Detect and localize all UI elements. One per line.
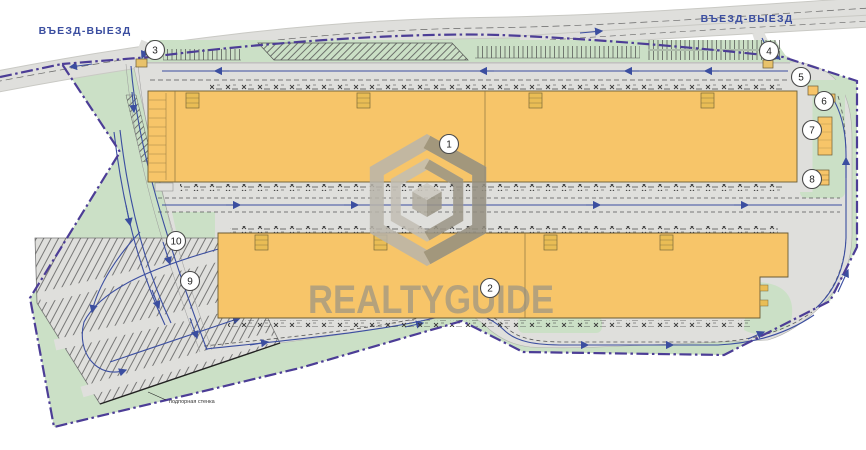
structure-7 bbox=[818, 117, 832, 155]
plan-marker-1: 1 bbox=[440, 135, 459, 154]
retaining-wall-label: подпорная стенка bbox=[169, 399, 216, 405]
plan-marker-3: 3 bbox=[146, 41, 165, 60]
svg-text:4: 4 bbox=[766, 47, 772, 58]
plan-marker-9: 9 bbox=[181, 272, 200, 291]
plan-marker-10: 10 bbox=[167, 232, 186, 251]
entrance-label-right: ВЪЕЗД-ВЫЕЗД bbox=[701, 13, 794, 25]
dock-doors-top bbox=[230, 226, 778, 233]
plan-marker-6: 6 bbox=[815, 92, 834, 111]
svg-text:1: 1 bbox=[446, 140, 452, 151]
svg-text:7: 7 bbox=[809, 126, 815, 137]
plan-marker-5: 5 bbox=[792, 68, 811, 87]
structure-5 bbox=[808, 86, 818, 95]
dock-doors-top bbox=[210, 84, 785, 91]
svg-text:6: 6 bbox=[821, 97, 827, 108]
watermark-text: REALTYGUIDE bbox=[308, 278, 554, 322]
plan-marker-4: 4 bbox=[760, 42, 779, 61]
svg-text:9: 9 bbox=[187, 277, 193, 288]
plan-marker-8: 8 bbox=[803, 170, 822, 189]
site-plan-drawing: REALTYGUIDE ВЪЕЗД-ВЫЕЗД ВЪЕЗД-ВЫЕЗД подп… bbox=[0, 0, 866, 450]
plan-marker-2: 2 bbox=[481, 279, 500, 298]
svg-text:8: 8 bbox=[809, 175, 815, 186]
svg-text:3: 3 bbox=[152, 46, 158, 57]
site-plan-canvas: REALTYGUIDE ВЪЕЗД-ВЫЕЗД ВЪЕЗД-ВЫЕЗД подп… bbox=[0, 0, 866, 450]
entrance-label-left: ВЪЕЗД-ВЫЕЗД bbox=[39, 25, 132, 37]
svg-text:2: 2 bbox=[487, 284, 493, 295]
svg-text:5: 5 bbox=[798, 73, 804, 84]
plan-marker-7: 7 bbox=[803, 121, 822, 140]
svg-text:10: 10 bbox=[170, 237, 182, 248]
